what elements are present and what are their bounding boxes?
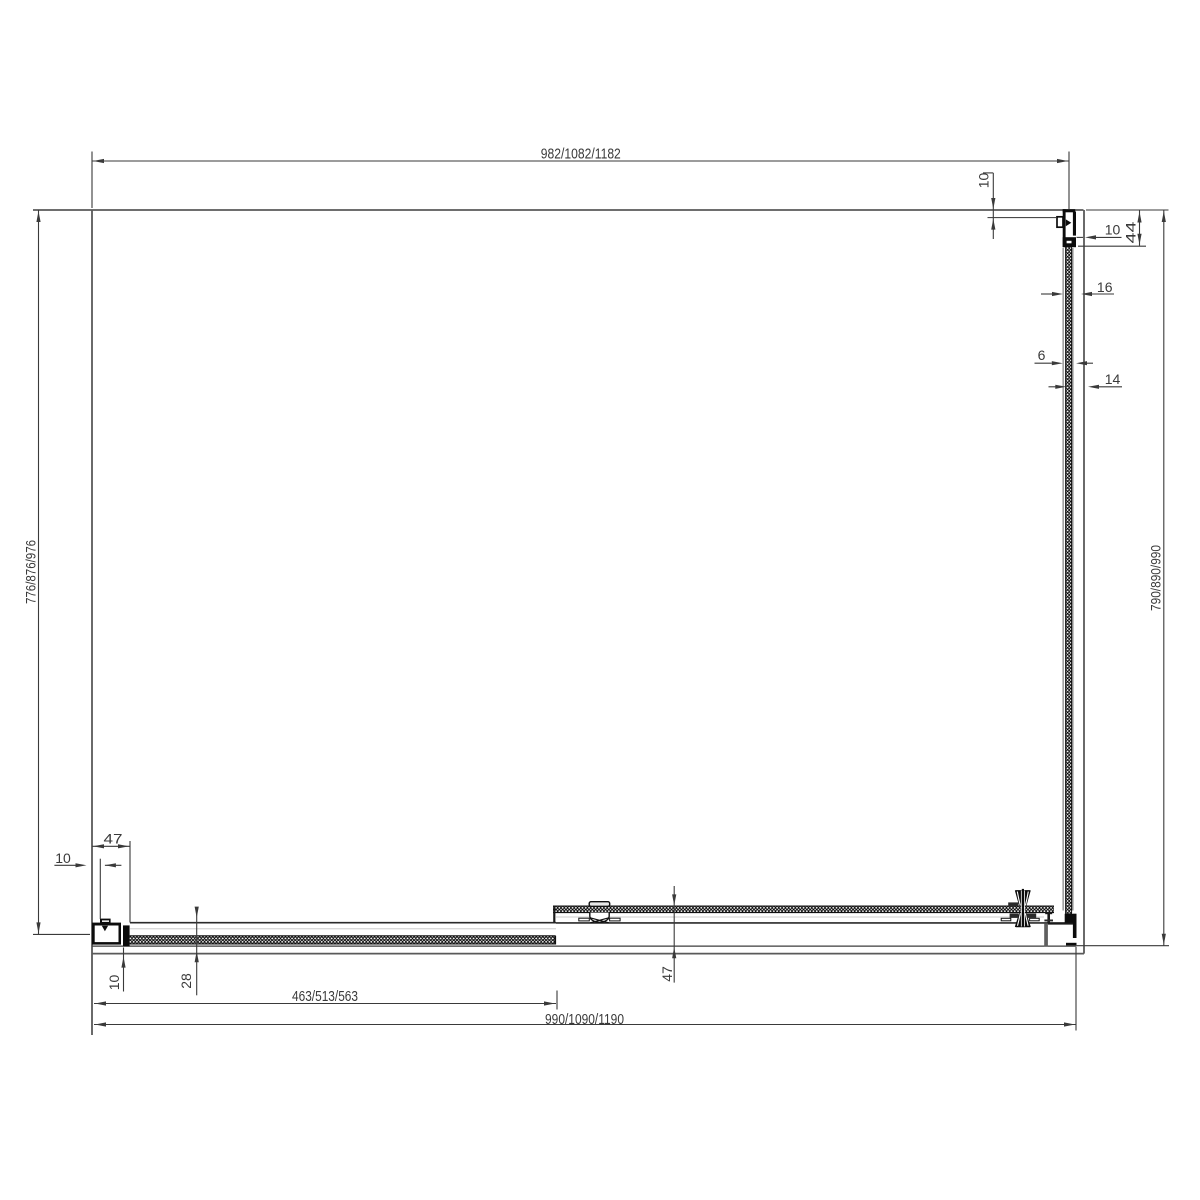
svg-text:6: 6: [1038, 347, 1046, 363]
svg-text:10: 10: [1105, 222, 1121, 238]
svg-text:10: 10: [106, 975, 122, 991]
svg-text:28: 28: [178, 973, 194, 989]
svg-text:463/513/563: 463/513/563: [292, 989, 358, 1005]
svg-text:776/876/976: 776/876/976: [23, 540, 39, 604]
svg-text:790/890/990: 790/890/990: [1148, 545, 1164, 611]
svg-text:16: 16: [1097, 279, 1113, 295]
svg-text:10: 10: [976, 173, 992, 189]
svg-text:10: 10: [55, 850, 71, 866]
svg-text:44: 44: [1123, 221, 1139, 243]
svg-text:47: 47: [104, 831, 123, 847]
svg-text:990/1090/1190: 990/1090/1190: [545, 1012, 624, 1028]
svg-text:47: 47: [659, 966, 675, 982]
svg-text:14: 14: [1105, 371, 1121, 387]
svg-text:982/1082/1182: 982/1082/1182: [541, 147, 621, 163]
